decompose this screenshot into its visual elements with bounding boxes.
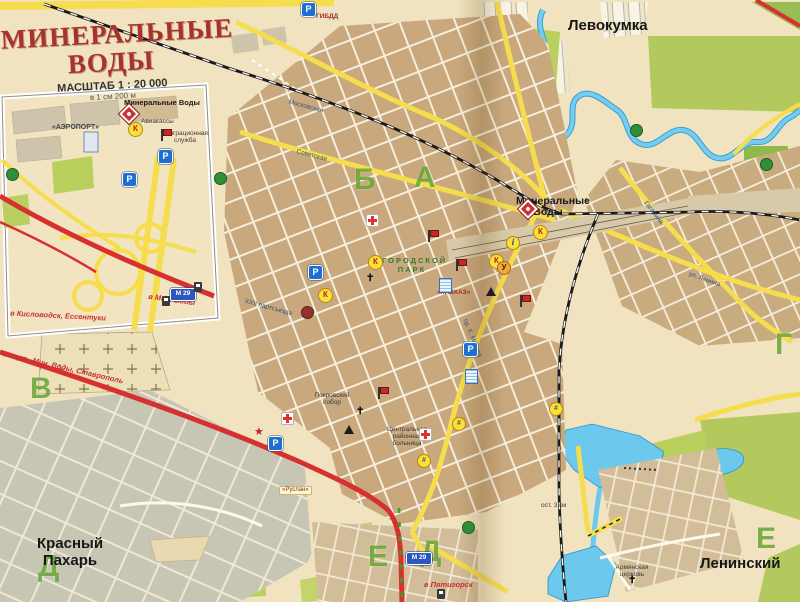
- tree-icon: [760, 158, 773, 171]
- kassa-icon: К: [368, 255, 383, 270]
- gibdd-label: ГИБДД: [316, 13, 338, 20]
- map-title-block: МИНЕРАЛЬНЫЕ ВОДЫ МАСШТАБ 1 : 20 000 в 1 …: [0, 14, 222, 106]
- hospital-icon: [366, 214, 379, 227]
- bus-stop-label: ост. 3 км: [541, 502, 566, 509]
- parking-icon-inset: P: [158, 149, 173, 164]
- parking-icon-inset: P: [122, 172, 137, 187]
- admin-flag-icon-inset: [160, 129, 170, 141]
- inset-airport-label: «АЭРОПОРТ»: [52, 124, 99, 132]
- to-pyatigorsk-label: в Пятигорск: [424, 581, 473, 589]
- inset-station-label: Минеральные Воды: [124, 99, 200, 107]
- hospital-icon: [281, 412, 294, 425]
- ruslan-label: «Руслан»: [279, 486, 312, 495]
- memorial-star-icon: ★: [254, 427, 264, 438]
- grid-letter-e: Е: [368, 540, 388, 574]
- church-icon: ✝: [356, 407, 364, 417]
- tree-icon: [462, 521, 475, 534]
- paper-fold: [458, 0, 506, 602]
- hospital-icon: [419, 428, 432, 441]
- admin-flag-icon: [455, 259, 465, 271]
- market-icon: #: [417, 454, 431, 468]
- parking-icon: P: [268, 436, 283, 451]
- m29-shield: М 29: [406, 552, 432, 565]
- church-icon: ✝: [628, 576, 636, 586]
- hotel-icon: [439, 278, 452, 293]
- info-icon: і: [506, 236, 520, 250]
- hotel-icon: [465, 369, 478, 384]
- tree-icon: [214, 172, 227, 185]
- cinema-icon: [301, 306, 314, 319]
- church-icon: ✝: [366, 274, 374, 284]
- monument-icon: [344, 425, 354, 434]
- tree-icon-inset: [6, 168, 19, 181]
- place-krasny-pahar-2: Пахарь: [25, 553, 115, 570]
- place-krasny-pahar-1: Красный: [25, 536, 115, 553]
- monument-icon: [486, 287, 496, 296]
- place-leninsky: Ленинский: [700, 556, 781, 573]
- admin-flag-icon: [519, 295, 529, 307]
- market-icon: #: [452, 417, 466, 431]
- fuel-station-icon-inset: [162, 296, 170, 306]
- admin-flag-icon: [427, 230, 437, 242]
- admin-flag-icon: [377, 387, 387, 399]
- city-park-label-1: ГОРОДСКОЙ: [382, 256, 442, 265]
- service-icon: У: [497, 261, 511, 275]
- kassa-icon-inset: К: [128, 122, 143, 137]
- cathedral-label: Покровский собор: [306, 392, 358, 406]
- grid-letter-e2: Е: [756, 522, 776, 556]
- grid-letter-a: А: [414, 161, 436, 195]
- grid-letter-b: Б: [354, 163, 376, 197]
- grid-letter-g: Г: [775, 328, 792, 362]
- parking-icon: P: [463, 342, 478, 357]
- fuel-station-icon-inset: [194, 282, 202, 292]
- inset-migration-label-2: служба: [164, 137, 206, 144]
- parking-icon: P: [301, 2, 316, 17]
- fuel-station-icon: [437, 589, 445, 599]
- tree-icon: [630, 124, 643, 137]
- grid-letter-v: В: [30, 372, 52, 406]
- place-levokumka: Левокумка: [568, 18, 648, 35]
- city-park-label-2: ПАРК: [382, 265, 442, 274]
- kassa-icon: К: [318, 288, 333, 303]
- m29-shield-inset: М 29: [170, 288, 196, 301]
- parking-icon: P: [308, 265, 323, 280]
- armenian-church-label-1: Армянская: [610, 564, 654, 571]
- kassa-icon: К: [533, 225, 548, 240]
- city-map-mineralnye-vody: МИНЕРАЛЬНЫЕ ВОДЫ МАСШТАБ 1 : 20 000 в 1 …: [0, 0, 800, 602]
- market-icon: #: [549, 402, 563, 416]
- inset-aviakassy-label: Авиакассы: [141, 118, 174, 125]
